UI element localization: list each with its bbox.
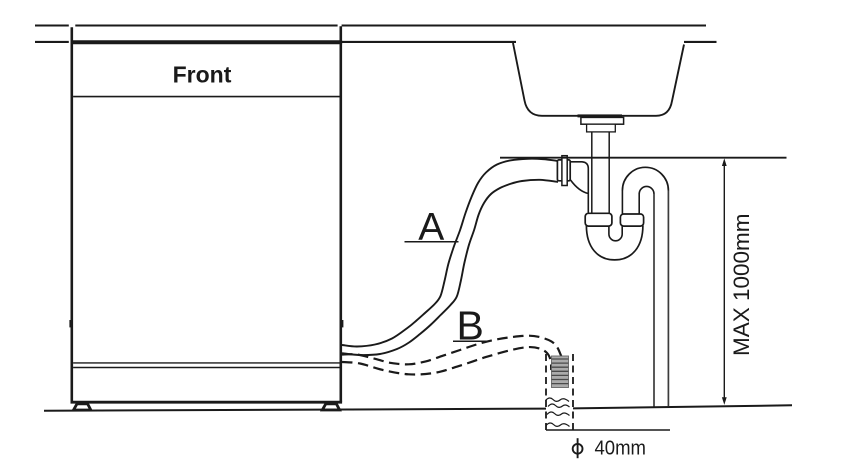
svg-text:40mm: 40mm xyxy=(595,436,647,459)
svg-text:MAX 1000mm: MAX 1000mm xyxy=(729,213,754,356)
svg-text:A: A xyxy=(418,206,444,249)
svg-text:Front: Front xyxy=(173,62,232,88)
